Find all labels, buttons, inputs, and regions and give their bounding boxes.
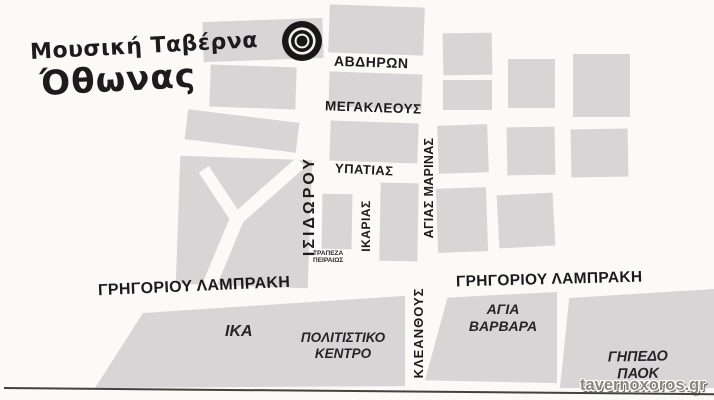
street-label-avdiron: ΑΒΔΗΡΩΝ	[334, 53, 409, 72]
street-label-agias-marinas: ΑΓΙΑΣ ΜΑΡΙΝΑΣ	[421, 138, 437, 238]
street-label-grigoriou-lampraki-west: ΓΡΗΓΟΡΙΟΥ ΛΑΜΠΡΑΚΗ	[98, 274, 291, 300]
city-block	[329, 120, 418, 163]
city-block	[437, 124, 489, 174]
diagonal-street	[231, 157, 306, 225]
city-block	[571, 129, 629, 178]
cultural-center-line1: ΠΟΛΙΤΙΣΤΙΚΟ	[283, 330, 403, 346]
street-label-kleanthous: ΚΛΕΑΝΘΟΥΣ	[410, 283, 426, 383]
city-block	[497, 193, 556, 249]
city-block-with-junction	[176, 156, 312, 289]
location-marker-bullseye-icon	[281, 20, 323, 62]
street-label-ikarias: ΙΚΑΡΙΑΣ	[358, 191, 374, 261]
ika-label: ΙΚΑ	[225, 323, 253, 342]
city-block	[436, 187, 488, 253]
street-label-megakleous: ΜΕΓΑΚΛΕΟΥΣ	[325, 98, 422, 116]
bank-piraeus-label: ΤΡΑΠΕΖΑ ΠΕΙΡΑΙΩΣ	[313, 250, 343, 264]
city-block	[185, 109, 300, 152]
city-block	[322, 194, 353, 250]
city-block	[328, 4, 425, 55]
city-block	[507, 127, 556, 176]
taverna-map-card: ΑΒΔΗΡΩΝ ΜΕΓΑΚΛΕΟΥΣ ΥΠΑΤΙΑΣ ΙΣΙΔΩΡΟΥ ΙΚΑΡ…	[0, 0, 714, 400]
city-block	[573, 54, 630, 117]
paok-stadium-line1: ΓΗΠΕΔΟ	[598, 348, 678, 367]
city-block	[379, 183, 418, 262]
street-label-grigoriou-lampraki-east: ΓΡΗΓΟΡΙΟΥ ΛΑΜΠΡΑΚΗ	[456, 269, 643, 292]
bank-label-line2: ΠΕΙΡΑΙΩΣ	[313, 257, 343, 264]
city-block	[508, 59, 555, 108]
cultural-center-label: ΠΟΛΙΤΙΣΤΙΚΟ ΚΕΝΤΡΟ	[283, 330, 403, 362]
cultural-center-line2: ΚΕΝΤΡΟ	[283, 346, 403, 362]
street-label-ypatias: ΥΠΑΤΙΑΣ	[335, 160, 394, 178]
agia-varvara-line2: ΒΑΡΒΑΡΑ	[453, 318, 553, 335]
city-block	[209, 65, 296, 110]
agia-varvara-line1: ΑΓΙΑ	[453, 301, 553, 318]
agia-varvara-label: ΑΓΙΑ ΒΑΡΒΑΡΑ	[453, 301, 553, 334]
bank-label-line1: ΤΡΑΠΕΖΑ	[313, 250, 343, 257]
city-block	[443, 80, 492, 110]
city-block	[443, 33, 493, 76]
taverna-title-name: Όθωνας	[39, 56, 197, 104]
diagonal-street	[199, 166, 243, 224]
